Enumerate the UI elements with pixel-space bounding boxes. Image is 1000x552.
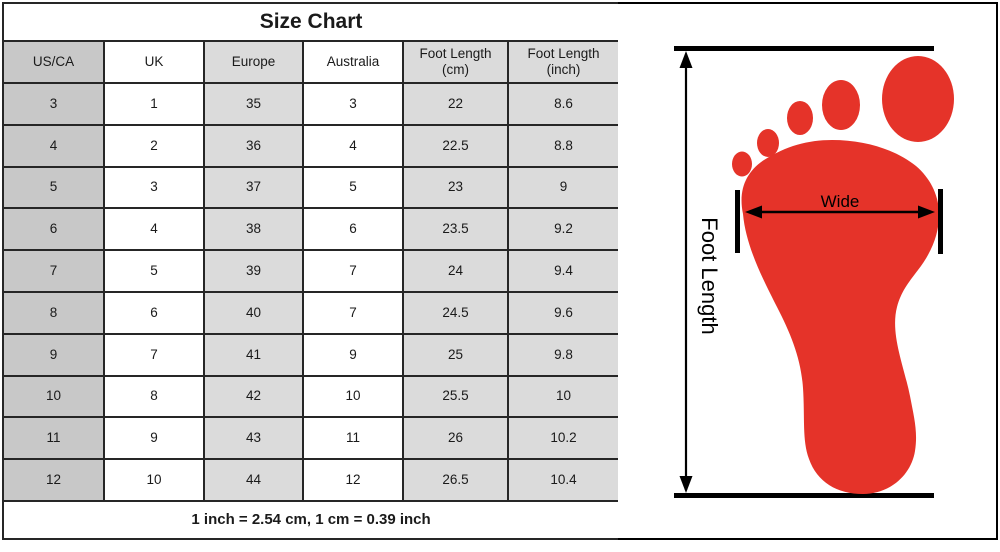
size-chart-image: Size Chart US/CA UK Europe Australia Foo… <box>0 0 1000 552</box>
wide-tick-left <box>735 190 740 253</box>
size-cell: 40 <box>204 292 303 334</box>
size-cell: 5 <box>3 167 104 209</box>
foot-measurement-diagram: Foot Length Wide <box>618 2 998 540</box>
size-cell: 9 <box>303 334 403 376</box>
second-toe <box>822 80 860 130</box>
size-cell: 35 <box>204 83 303 125</box>
size-cell: 10.4 <box>508 459 619 501</box>
size-cell: 11 <box>303 417 403 459</box>
size-cell: 6 <box>3 208 104 250</box>
column-header: Foot Length (inch) <box>508 41 619 83</box>
size-cell: 10.2 <box>508 417 619 459</box>
size-cell: 24 <box>403 250 508 292</box>
wide-label: Wide <box>821 192 860 211</box>
size-cell: 26 <box>403 417 508 459</box>
size-cell: 39 <box>204 250 303 292</box>
table-row: 6 4 38 6 23.5 9.2 <box>3 208 619 250</box>
size-cell: 11 <box>3 417 104 459</box>
length-cap-top-line <box>674 46 934 51</box>
table-row: 10 8 42 10 25.5 10 <box>3 376 619 418</box>
table-row: 12 10 44 12 26.5 10.4 <box>3 459 619 501</box>
length-cap-bottom-line <box>674 493 934 498</box>
size-cell: 7 <box>303 292 403 334</box>
size-cell: 41 <box>204 334 303 376</box>
size-cell: 9 <box>508 167 619 209</box>
table-row: 4 2 36 4 22.5 8.8 <box>3 125 619 167</box>
conversion-note: 1 inch = 2.54 cm, 1 cm = 0.39 inch <box>3 501 619 539</box>
size-cell: 3 <box>104 167 204 209</box>
size-cell: 7 <box>104 334 204 376</box>
table-row: 9 7 41 9 25 9.8 <box>3 334 619 376</box>
column-header: Foot Length (cm) <box>403 41 508 83</box>
table-row: 7 5 39 7 24 9.4 <box>3 250 619 292</box>
fourth-toe <box>757 129 779 157</box>
size-cell: 9.2 <box>508 208 619 250</box>
length-arrowhead-up-icon <box>680 51 693 68</box>
column-header: Europe <box>204 41 303 83</box>
table-row: 5 3 37 5 23 9 <box>3 167 619 209</box>
size-cell: 9.8 <box>508 334 619 376</box>
size-cell: 4 <box>104 208 204 250</box>
size-cell: 5 <box>104 250 204 292</box>
size-cell: 23.5 <box>403 208 508 250</box>
size-cell: 10 <box>104 459 204 501</box>
size-cell: 3 <box>3 83 104 125</box>
column-header: US/CA <box>3 41 104 83</box>
table-title-row: Size Chart <box>3 3 619 41</box>
size-cell: 12 <box>303 459 403 501</box>
foot-diagram-svg: Foot Length Wide <box>618 4 996 538</box>
size-cell: 26.5 <box>403 459 508 501</box>
column-header: UK <box>104 41 204 83</box>
table-row: 3 1 35 3 22 8.6 <box>3 83 619 125</box>
size-cell: 10 <box>303 376 403 418</box>
size-cell: 43 <box>204 417 303 459</box>
size-cell: 25.5 <box>403 376 508 418</box>
size-cell: 8.8 <box>508 125 619 167</box>
size-cell: 5 <box>303 167 403 209</box>
size-cell: 22 <box>403 83 508 125</box>
size-cell: 10 <box>3 376 104 418</box>
size-cell: 4 <box>303 125 403 167</box>
conversion-note-row: 1 inch = 2.54 cm, 1 cm = 0.39 inch <box>3 501 619 539</box>
little-toe <box>732 152 752 177</box>
size-cell: 24.5 <box>403 292 508 334</box>
table-body: 3 1 35 3 22 8.6 4 <box>3 83 619 501</box>
size-cell: 8 <box>3 292 104 334</box>
size-cell: 6 <box>104 292 204 334</box>
size-cell: 8 <box>104 376 204 418</box>
size-cell: 22.5 <box>403 125 508 167</box>
wide-tick-right <box>938 189 943 254</box>
size-cell: 9.4 <box>508 250 619 292</box>
size-cell: 25 <box>403 334 508 376</box>
size-cell: 3 <box>303 83 403 125</box>
size-cell: 44 <box>204 459 303 501</box>
size-cell: 10 <box>508 376 619 418</box>
foot-length-label: Foot Length <box>697 217 722 334</box>
size-cell: 7 <box>303 250 403 292</box>
table-row: 8 6 40 7 24.5 9.6 <box>3 292 619 334</box>
size-cell: 2 <box>104 125 204 167</box>
page-title: Size Chart <box>3 3 619 41</box>
size-cell: 4 <box>3 125 104 167</box>
size-cell: 12 <box>3 459 104 501</box>
big-toe <box>882 56 954 142</box>
size-table: Size Chart US/CA UK Europe Australia Foo… <box>2 2 620 540</box>
length-arrowhead-down-icon <box>680 476 693 493</box>
table-header-row: US/CA UK Europe Australia Foot Length (c… <box>3 41 619 83</box>
size-cell: 38 <box>204 208 303 250</box>
third-toe <box>787 101 813 135</box>
size-cell: 37 <box>204 167 303 209</box>
size-cell: 8.6 <box>508 83 619 125</box>
column-header: Australia <box>303 41 403 83</box>
size-cell: 42 <box>204 376 303 418</box>
size-cell: 23 <box>403 167 508 209</box>
size-cell: 6 <box>303 208 403 250</box>
footprint <box>732 56 954 494</box>
size-cell: 7 <box>3 250 104 292</box>
size-cell: 9.6 <box>508 292 619 334</box>
size-cell: 9 <box>104 417 204 459</box>
size-cell: 1 <box>104 83 204 125</box>
size-cell: 9 <box>3 334 104 376</box>
table-row: 11 9 43 11 26 10.2 <box>3 417 619 459</box>
size-cell: 36 <box>204 125 303 167</box>
